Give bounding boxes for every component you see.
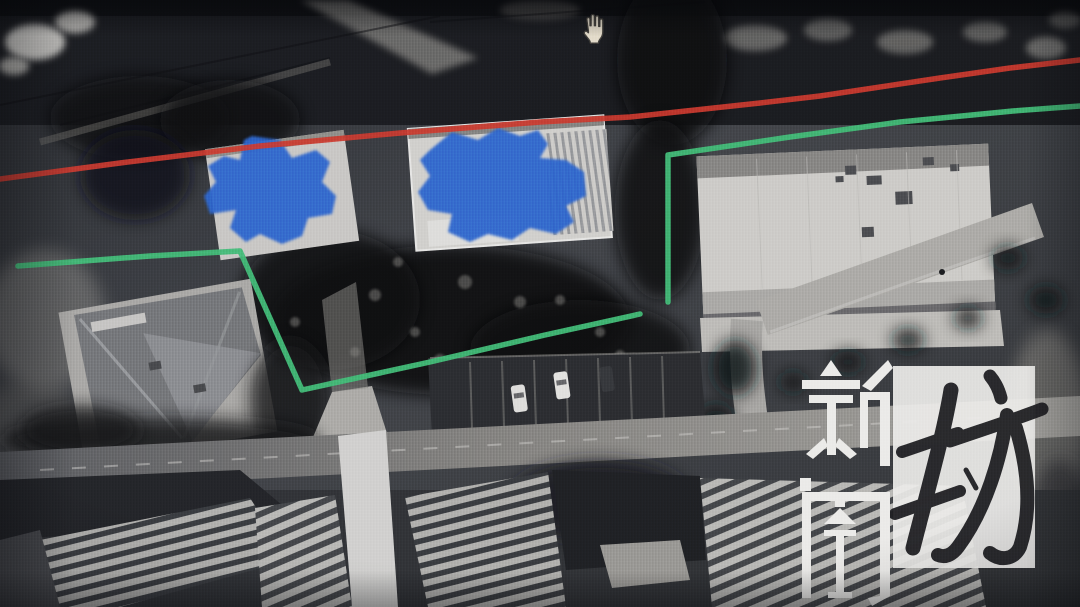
satellite-map-view[interactable] <box>0 0 1080 607</box>
pedestrian-dot <box>939 269 945 275</box>
screen-photo: 新 闻 坊 <box>0 0 1080 607</box>
